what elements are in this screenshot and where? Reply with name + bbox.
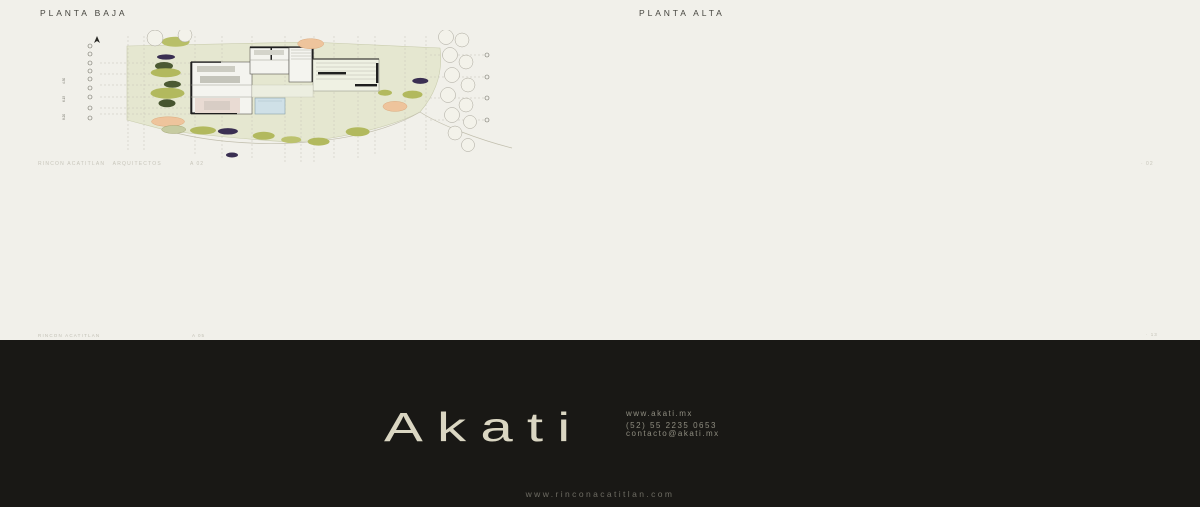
svg-text:4.30: 4.30 [62,78,66,84]
svg-text:6.15: 6.15 [62,96,66,102]
svg-text:8.20: 8.20 [62,114,66,120]
